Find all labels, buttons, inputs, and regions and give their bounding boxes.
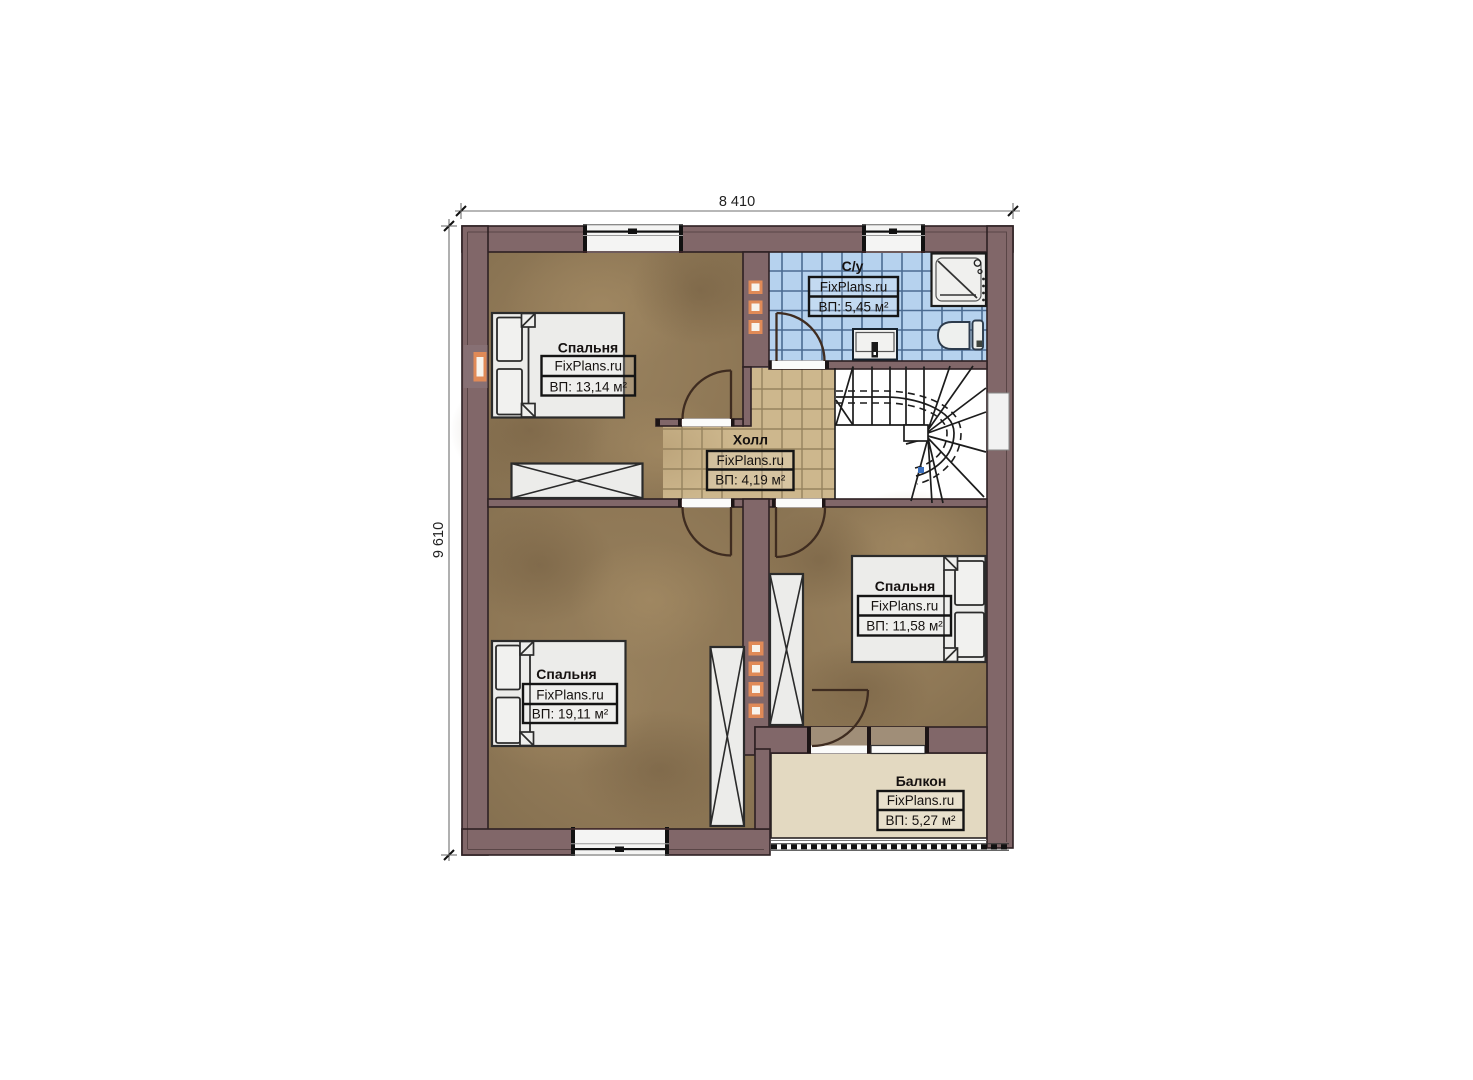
svg-text:ВП: 11,58 м²: ВП: 11,58 м² [866, 619, 943, 634]
svg-text:FixPlans.ru: FixPlans.ru [820, 280, 888, 295]
svg-text:Холл: Холл [733, 432, 768, 448]
svg-text:ВП: 19,11 м²: ВП: 19,11 м² [532, 707, 609, 722]
svg-text:FixPlans.ru: FixPlans.ru [536, 688, 604, 703]
svg-text:FixPlans.ru: FixPlans.ru [871, 599, 939, 614]
svg-text:Балкон: Балкон [896, 773, 947, 789]
svg-text:С/у: С/у [842, 258, 864, 274]
svg-text:8 410: 8 410 [719, 194, 755, 210]
svg-text:ВП: 13,14 м²: ВП: 13,14 м² [549, 380, 627, 395]
svg-text:Спальня: Спальня [875, 578, 935, 594]
svg-text:Спальня: Спальня [536, 666, 596, 682]
svg-text:ВП: 5,45 м²: ВП: 5,45 м² [818, 300, 889, 315]
svg-text:FixPlans.ru: FixPlans.ru [716, 453, 784, 468]
svg-text:ВП: 5,27 м²: ВП: 5,27 м² [885, 813, 956, 828]
svg-text:FixPlans.ru: FixPlans.ru [554, 359, 622, 374]
svg-text:ВП: 4,19 м²: ВП: 4,19 м² [715, 473, 786, 488]
svg-text:Спальня: Спальня [558, 340, 618, 356]
svg-text:9 610: 9 610 [431, 522, 447, 558]
svg-text:FixPlans.ru: FixPlans.ru [887, 793, 955, 808]
